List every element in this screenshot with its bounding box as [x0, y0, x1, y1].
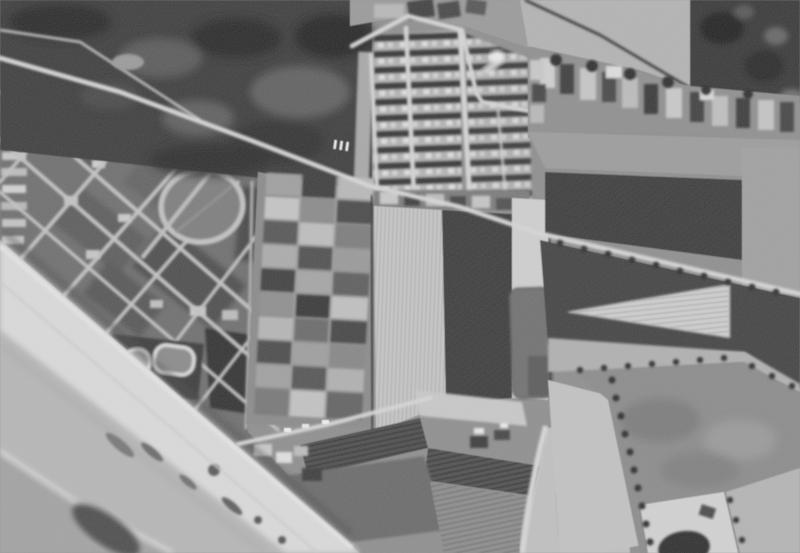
aerial-photograph — [0, 0, 800, 553]
aerial-photo-canvas — [0, 0, 800, 553]
film-grain-overlay — [0, 0, 800, 553]
